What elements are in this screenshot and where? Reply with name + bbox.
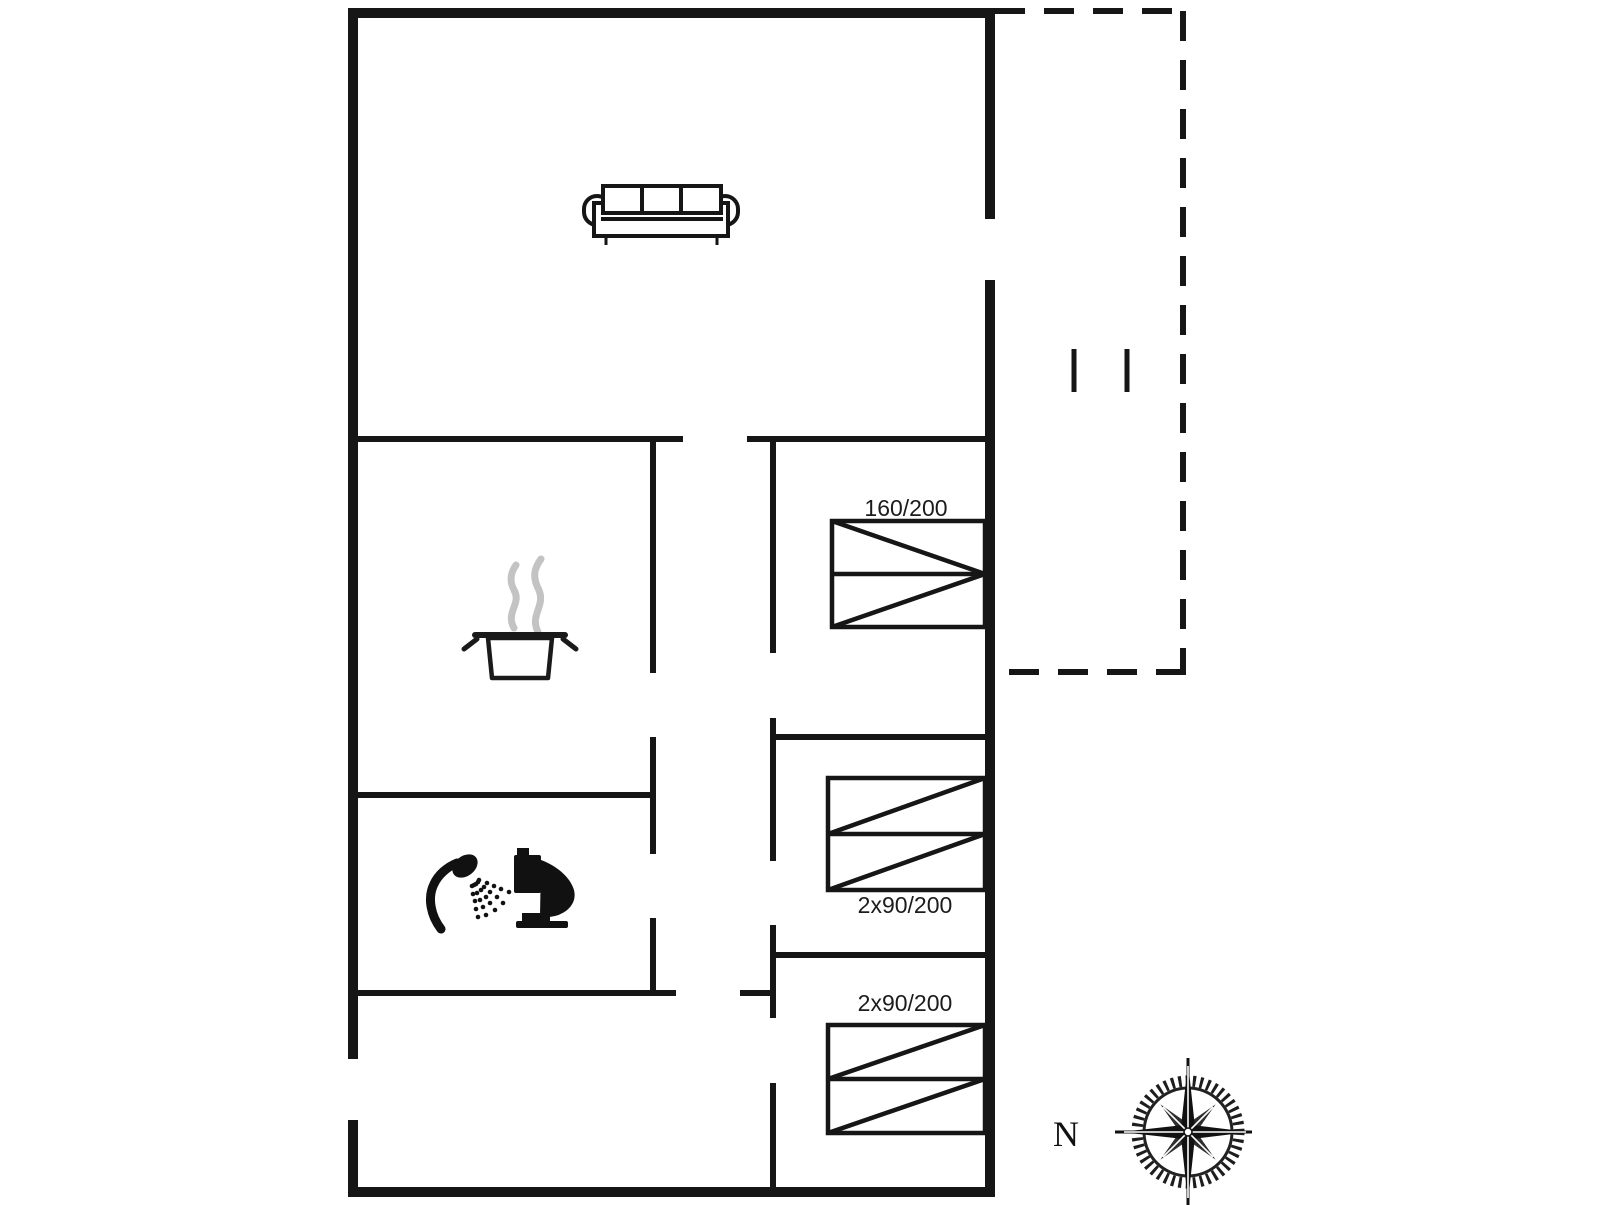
steam-wisp-right — [535, 559, 541, 632]
toilet-icon — [514, 848, 575, 928]
compass-hub — [1184, 1128, 1192, 1136]
sofa-icon — [584, 186, 738, 245]
twin-bed-symbol-bottom — [828, 1025, 985, 1133]
pot-handle-right — [563, 639, 576, 649]
steam-wisp-left — [511, 565, 516, 628]
floor-plan: 160/200 2x90/200 2x90/200 — [0, 0, 1606, 1205]
bed-size-label-2x90-bottom: 2x90/200 — [858, 990, 953, 1016]
shower-spray-dots — [470, 878, 512, 920]
steam-icon — [511, 559, 541, 632]
terrace-door-marks — [1074, 349, 1127, 392]
twin-bed-symbol-middle — [828, 778, 985, 890]
shower-icon — [430, 850, 511, 929]
compass-north-label: N — [1053, 1114, 1079, 1154]
bed-size-label-2x90-middle: 2x90/200 — [858, 892, 953, 918]
toilet-bowl — [540, 860, 575, 917]
pot-body — [488, 638, 552, 678]
sofa-back — [603, 186, 721, 213]
toilet-base — [516, 921, 568, 928]
cooking-pot-icon — [464, 635, 576, 678]
bed-size-label-160: 160/200 — [864, 495, 947, 521]
compass-rose-icon — [1115, 1058, 1252, 1205]
toilet-tank — [514, 855, 541, 893]
double-bed-symbol — [832, 521, 985, 627]
pot-handle-left — [464, 639, 477, 649]
terrace-dashed-outline — [995, 11, 1186, 675]
